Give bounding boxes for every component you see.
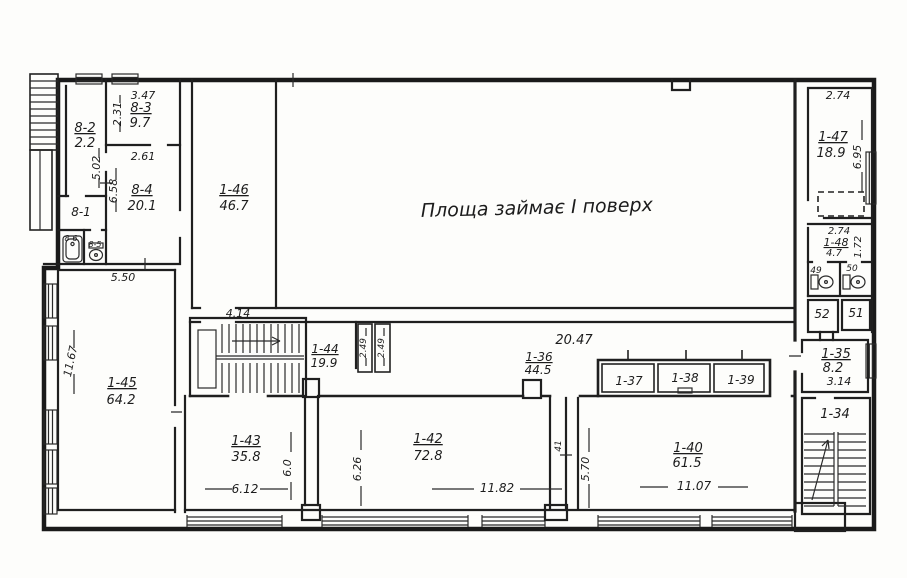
room-label-1-46: 1-46 [219, 183, 249, 198]
toilet-icon-50 [843, 275, 865, 289]
interior-walls [44, 80, 872, 531]
dim-20-47: 20.47 [555, 333, 593, 348]
exterior-walls [44, 80, 874, 529]
room-label-8-4: 8-4 [131, 183, 152, 198]
dim-2-31: 2.31 [111, 102, 124, 127]
room-area-8-2: 2.2 [75, 136, 96, 151]
room-label-8-6: 8-6 [64, 234, 77, 243]
room-label-49: 49 [810, 266, 822, 276]
room-area-1-45: 64.2 [107, 393, 136, 408]
dim-1-72: 1.72 [853, 236, 864, 258]
dashed-equipment-rect [818, 192, 864, 216]
room-label-1-47: 1-47 [818, 130, 848, 145]
dim-3-14: 3.14 [827, 375, 852, 388]
dim-6-12: 6.12 [232, 482, 259, 496]
room-label-41: 41 [554, 440, 564, 451]
room-label-8-2: 8-2 [74, 121, 95, 136]
exterior-stair [30, 74, 58, 230]
labels: 3.47 2.31 8-3 9.7 8-2 2.2 2.61 5.02 6.58… [61, 89, 864, 496]
dim-2-61: 2.61 [131, 150, 156, 163]
floor-plan-page: 3.47 2.31 8-3 9.7 8-2 2.2 2.61 5.02 6.58… [0, 0, 907, 578]
dim-11-67: 11.67 [61, 345, 80, 379]
room-label-1-44: 1-44 [311, 342, 338, 356]
room-area-1-35: 8.2 [823, 361, 844, 376]
dim-5-50: 5.50 [111, 271, 136, 284]
room-area-8-3: 9.7 [130, 116, 151, 131]
dim-6-0: 6.0 [281, 459, 294, 477]
staircase-1-34 [804, 432, 866, 506]
room-area-1-47: 18.9 [817, 146, 846, 161]
room-label-1-45: 1-45 [107, 376, 137, 391]
dim-2-74-top: 2.74 [826, 89, 851, 102]
room-area-1-44: 19.9 [311, 356, 338, 370]
room-label-1-42: 1-42 [413, 432, 443, 447]
room-label-51: 51 [848, 306, 863, 320]
dim-11-82: 11.82 [480, 481, 514, 495]
dim-2-49-b: 2.49 [377, 338, 387, 358]
toilet-icon-49 [811, 275, 833, 289]
room-label-8-5: 8-5 [88, 240, 101, 249]
room-label-8-3: 8-3 [130, 101, 151, 116]
dim-5-70: 5.70 [579, 457, 592, 482]
room-area-1-36: 44.5 [525, 363, 552, 377]
dim-11-07: 11.07 [677, 479, 712, 493]
room-area-1-42: 72.8 [414, 449, 443, 464]
room-area-8-4: 20.1 [128, 199, 157, 214]
room-label-1-40: 1-40 [673, 441, 703, 456]
hall-note: Площа займає I поверх [421, 194, 654, 222]
room-label-8-1: 8-1 [71, 205, 91, 219]
room-label-1-39: 1-39 [727, 373, 754, 387]
room-label-1-43: 1-43 [231, 434, 261, 449]
dim-6-26: 6.26 [351, 457, 364, 482]
room-area-1-43: 35.8 [232, 450, 261, 465]
room-area-1-48: 4.7 [826, 248, 843, 259]
room-label-1-37: 1-37 [615, 374, 643, 388]
dim-5-02: 5.02 [90, 156, 103, 181]
room-label-52: 52 [814, 307, 829, 321]
dim-6-95: 6.95 [851, 145, 864, 170]
room-label-1-34: 1-34 [820, 407, 850, 422]
window-hatches [44, 74, 876, 527]
room-area-1-46: 46.7 [220, 199, 250, 214]
room-label-1-35: 1-35 [821, 347, 851, 362]
room-label-1-36: 1-36 [525, 350, 553, 364]
dim-2-49-a: 2.49 [359, 338, 369, 358]
dim-4-14: 4.14 [226, 307, 251, 320]
room-area-1-40: 61.5 [673, 456, 702, 471]
room-label-1-38: 1-38 [671, 371, 699, 385]
staircase-mid-left [198, 324, 304, 393]
dim-6-58: 6.58 [107, 179, 120, 204]
room-label-50: 50 [846, 264, 858, 274]
floor-plan-drawing: 3.47 2.31 8-3 9.7 8-2 2.2 2.61 5.02 6.58… [0, 0, 907, 578]
